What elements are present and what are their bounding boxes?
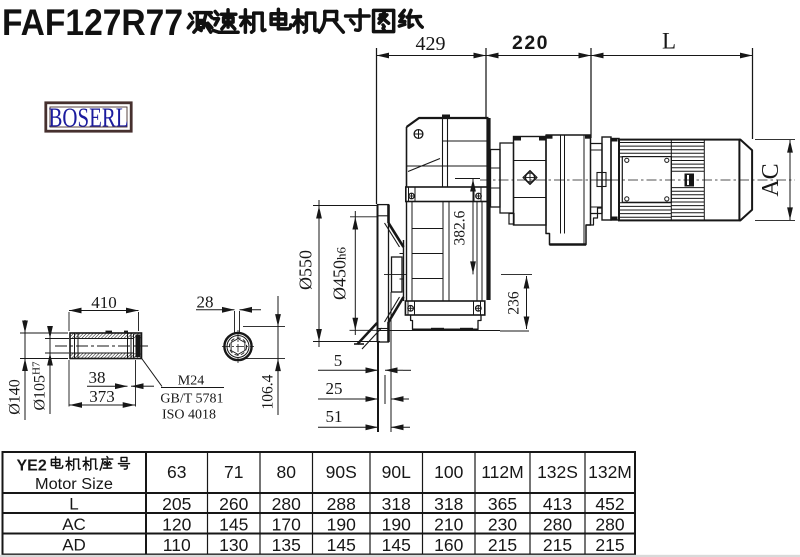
svg-text:106.4: 106.4 xyxy=(260,374,277,409)
svg-text:GB/T 5781: GB/T 5781 xyxy=(160,392,223,407)
svg-text:230: 230 xyxy=(488,515,517,535)
svg-text:5: 5 xyxy=(334,351,343,370)
svg-text:410: 410 xyxy=(91,293,117,312)
svg-text:Ø550: Ø550 xyxy=(296,250,316,290)
svg-text:112M: 112M xyxy=(481,462,523,482)
svg-text:280: 280 xyxy=(272,494,301,514)
svg-text:413: 413 xyxy=(543,494,572,514)
svg-text:63: 63 xyxy=(167,462,186,482)
svg-text:190: 190 xyxy=(327,515,356,535)
svg-text:BOSERL: BOSERL xyxy=(49,103,129,133)
svg-text:Motor Size: Motor Size xyxy=(35,476,113,493)
svg-text:145: 145 xyxy=(327,535,356,555)
svg-text:210: 210 xyxy=(434,515,463,535)
svg-text:190: 190 xyxy=(382,515,411,535)
svg-text:Ø140: Ø140 xyxy=(7,379,24,415)
svg-text:AC: AC xyxy=(62,515,86,534)
svg-text:25: 25 xyxy=(326,379,343,398)
svg-text:260: 260 xyxy=(219,494,248,514)
svg-text:90S: 90S xyxy=(326,462,357,482)
svg-text:ISO 4018: ISO 4018 xyxy=(162,408,216,423)
svg-text:132M: 132M xyxy=(588,462,632,482)
svg-text:365: 365 xyxy=(488,494,517,514)
svg-text:AC: AC xyxy=(758,163,784,196)
svg-text:FAF127R77: FAF127R77 xyxy=(2,2,183,43)
svg-text:382.6: 382.6 xyxy=(452,210,469,245)
svg-text:120: 120 xyxy=(162,515,191,535)
svg-text:429: 429 xyxy=(416,33,446,55)
svg-text:130: 130 xyxy=(219,535,248,555)
svg-text:145: 145 xyxy=(382,535,411,555)
svg-text:280: 280 xyxy=(595,515,624,535)
svg-text:170: 170 xyxy=(272,515,301,535)
svg-text:220: 220 xyxy=(512,32,549,54)
svg-text:145: 145 xyxy=(219,515,248,535)
svg-text:215: 215 xyxy=(543,535,572,555)
svg-text:135: 135 xyxy=(272,535,301,555)
svg-text:280: 280 xyxy=(543,515,572,535)
svg-text:AD: AD xyxy=(62,536,86,555)
svg-text:236: 236 xyxy=(506,291,523,315)
svg-text:160: 160 xyxy=(434,535,463,555)
svg-text:452: 452 xyxy=(595,494,624,514)
svg-text:90L: 90L xyxy=(382,462,411,482)
svg-text:L: L xyxy=(662,29,676,54)
svg-text:132S: 132S xyxy=(537,462,578,482)
svg-text:205: 205 xyxy=(162,494,191,514)
svg-text:215: 215 xyxy=(488,535,517,555)
svg-text:100: 100 xyxy=(434,462,463,482)
svg-text:373: 373 xyxy=(89,387,115,406)
svg-text:288: 288 xyxy=(327,494,356,514)
svg-text:110: 110 xyxy=(163,535,191,555)
svg-text:51: 51 xyxy=(326,407,343,426)
svg-text:M24: M24 xyxy=(178,374,204,389)
svg-text:71: 71 xyxy=(224,462,243,482)
svg-text:80: 80 xyxy=(277,462,297,482)
svg-text:38: 38 xyxy=(89,368,106,387)
svg-text:318: 318 xyxy=(382,494,411,514)
svg-text:YE2: YE2 xyxy=(17,458,47,475)
svg-text:L: L xyxy=(69,495,78,514)
svg-text:28: 28 xyxy=(197,293,214,312)
svg-text:318: 318 xyxy=(434,494,463,514)
svg-text:215: 215 xyxy=(595,535,624,555)
